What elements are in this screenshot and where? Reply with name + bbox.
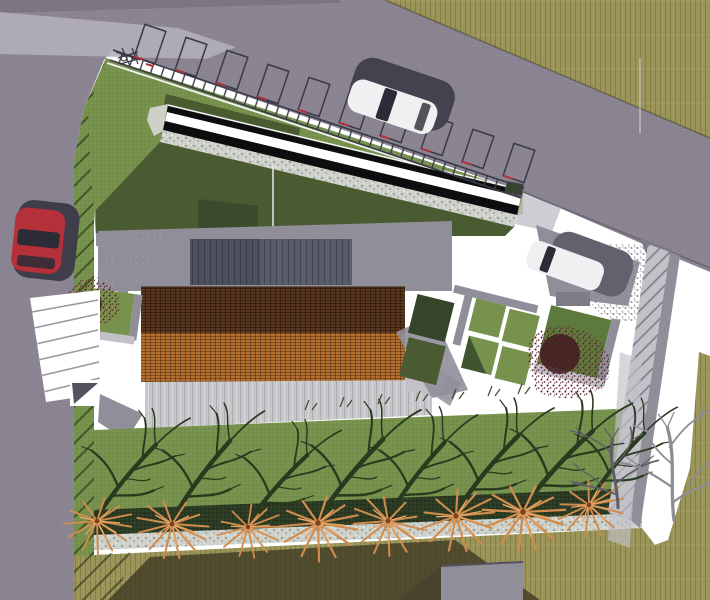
viewport-canvas[interactable] <box>0 0 710 600</box>
red-shrub-core <box>540 334 580 374</box>
site-plan-rendering <box>0 0 710 600</box>
tile-roof-dark-slope <box>141 287 405 333</box>
tile-roof-light-slope <box>141 333 405 382</box>
court-wall <box>118 235 128 295</box>
platform-step <box>556 292 590 306</box>
shed <box>441 562 523 600</box>
red-car-west <box>9 198 81 282</box>
upper-panel-roof <box>190 239 352 285</box>
